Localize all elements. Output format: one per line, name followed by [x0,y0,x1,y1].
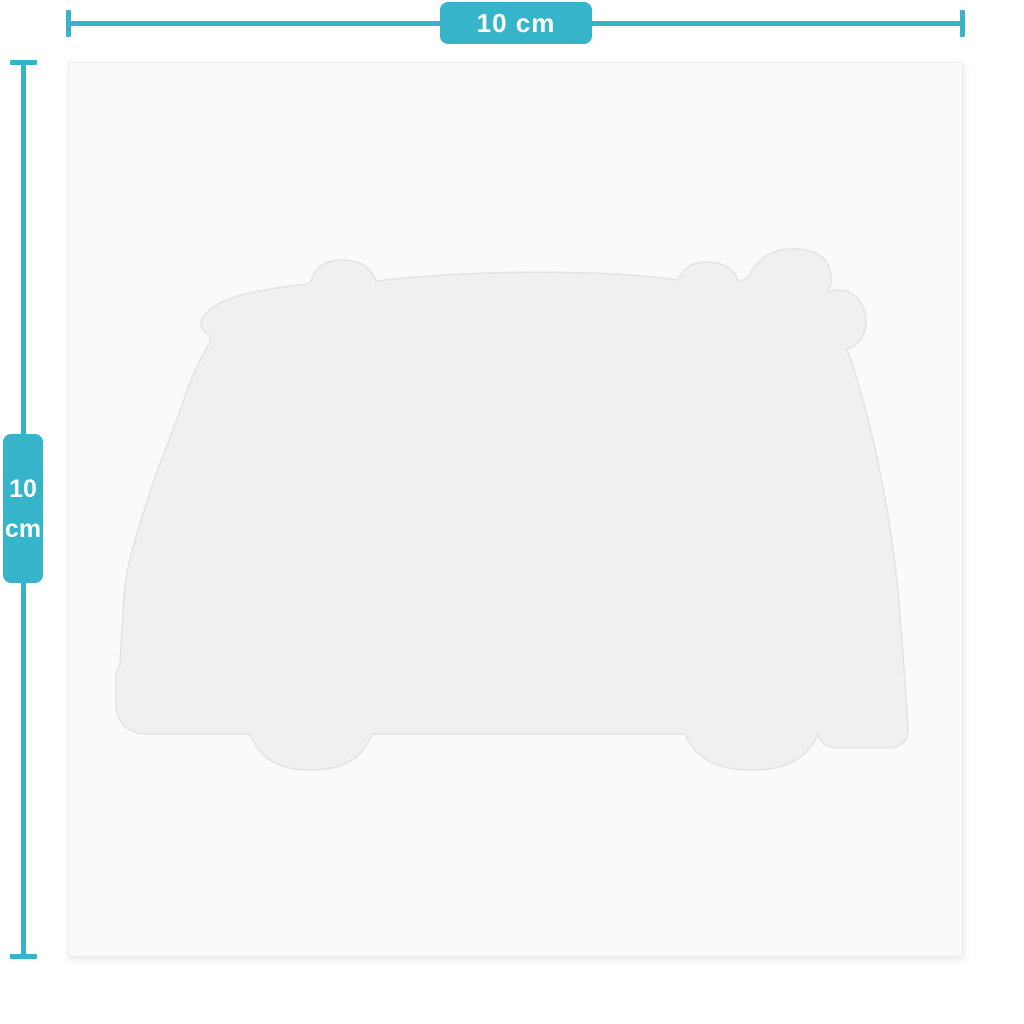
height-dimension-unit: cm [5,509,41,549]
height-ruler-bottom-cap [10,954,37,959]
camper-van-silhouette [69,63,964,958]
paper-sheet [68,62,963,957]
width-dimension-badge: 10 cm [440,2,592,44]
width-ruler-right-cap [960,10,965,37]
width-ruler-left-cap [66,10,71,37]
height-ruler-top-cap [10,60,37,65]
width-dimension-label: 10 cm [477,8,556,39]
height-dimension-value: 10 [9,469,37,509]
height-dimension-badge: 10 cm [3,434,43,583]
